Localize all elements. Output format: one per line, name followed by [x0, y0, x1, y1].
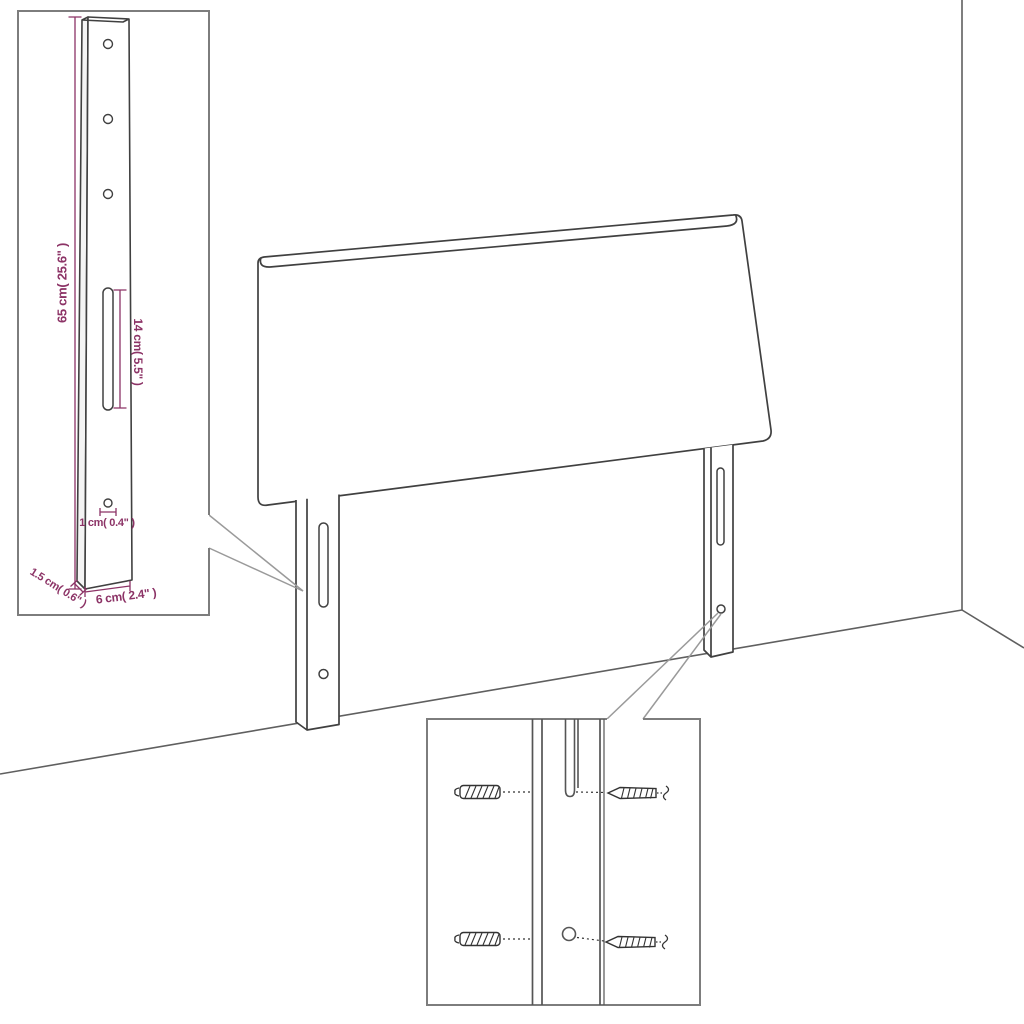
right-leg: [704, 445, 733, 657]
right-leg-hole: [717, 605, 725, 613]
bracket: [77, 17, 132, 589]
headboard-panel: [258, 215, 771, 506]
bracket-hole-3: [104, 190, 113, 199]
floor-line-right: [962, 610, 1024, 648]
dim-label-hole-diameter: 1 cm( 0.4" ): [79, 517, 134, 529]
line-art: [0, 0, 1024, 1024]
bracket-slot: [103, 288, 113, 410]
bracket-hole-1: [104, 40, 113, 49]
dim-label-slot-length: 14 cm( 5.5" ): [131, 318, 145, 385]
bracket-hole-2: [104, 115, 113, 124]
left-leg: [296, 495, 339, 731]
dim-label-height: 65 cm( 25.6" ): [55, 243, 70, 323]
diagram-canvas: 65 cm( 25.6" ) 14 cm( 5.5" ) 1 cm( 0.4" …: [0, 0, 1024, 1024]
left-leg-hole: [319, 670, 328, 679]
right-leg-slot: [717, 468, 724, 545]
left-leg-slot: [319, 523, 328, 607]
inset-leader-lines-left: [209, 515, 303, 591]
fastener-detail-inset: [427, 719, 700, 1005]
bracket-small-hole: [104, 499, 112, 507]
headboard-face: [258, 215, 771, 505]
